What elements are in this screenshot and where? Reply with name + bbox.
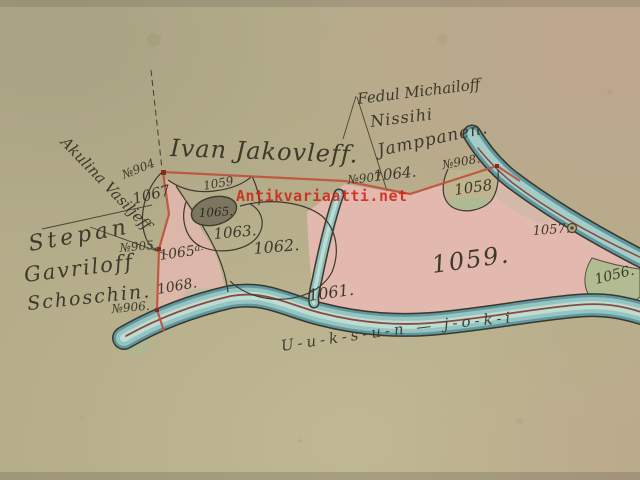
parcel-number-1057: 1057. bbox=[532, 221, 570, 239]
well-symbol-icon bbox=[568, 224, 577, 233]
map-photo: Ivan Jakovleff. Akulina Vasiljeff Stepan… bbox=[0, 0, 640, 480]
watermark: Antikvariaatti.net bbox=[236, 187, 408, 205]
cadastral-map-canvas: Ivan Jakovleff. Akulina Vasiljeff Stepan… bbox=[0, 0, 640, 480]
parcel-number-1065: 1065. bbox=[198, 204, 233, 220]
parcel-number-1063: 1063. bbox=[213, 221, 257, 243]
parcel-number-1062: 1062. bbox=[253, 235, 300, 258]
